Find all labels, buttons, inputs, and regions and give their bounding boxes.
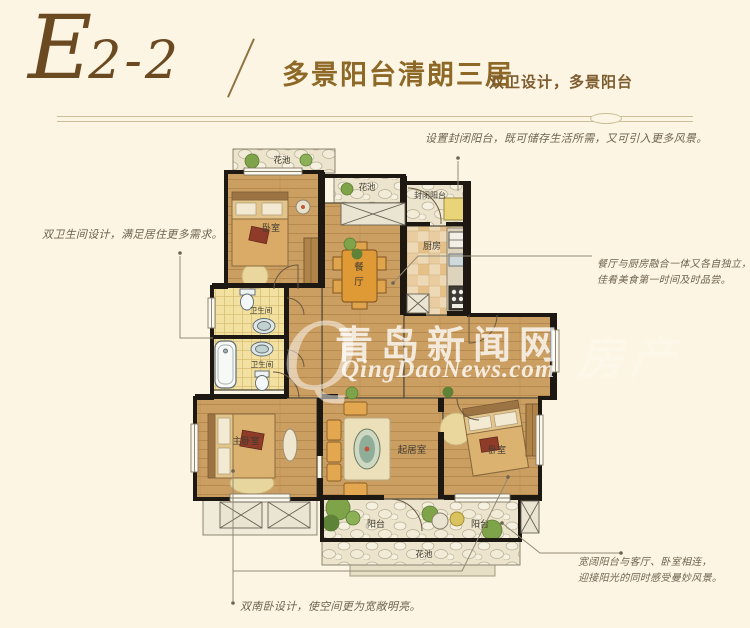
- window-hatch-left1: [220, 502, 262, 528]
- balcony-table-icon: [432, 513, 448, 529]
- label-flower-bed-mid: 花池: [358, 182, 376, 193]
- window-hatch-left2: [268, 502, 310, 528]
- annotation-balcony-line1: 宽阔阳台与客厅、卧室相连，: [578, 555, 722, 571]
- annotation-balcony: 宽阔阳台与客厅、卧室相连， 迎接阳光的同时感受曼妙风景。: [578, 555, 722, 587]
- label-balcony-left: 阳台: [367, 518, 385, 530]
- label-kitchen: 厨房: [423, 240, 441, 252]
- annotation-enclosed-balcony: 设置封闭阳台，既可储存生活所需，又可引入更多风景。: [425, 131, 708, 147]
- label-flower-bed-bottom: 花池: [415, 549, 433, 560]
- annotation-kitchen-dining-line1: 餐厅与厨房融合一体又各自独立，: [597, 257, 750, 273]
- label-dining-2: 厅: [354, 277, 364, 288]
- label-dining-1: 餐: [354, 261, 364, 273]
- annotation-kitchen-dining-line2: 佳肴美食第一时间及时品尝。: [597, 273, 750, 289]
- label-living-room: 起居室: [398, 444, 427, 456]
- balcony-cabinet-icon: [444, 198, 465, 220]
- annotation-south-bedrooms: 双南卧设计，使空间更为宽敞明亮。: [240, 599, 421, 615]
- room-hall: [404, 315, 555, 398]
- label-bedroom-top: 卧室: [262, 222, 280, 234]
- label-balcony-right: 阳台: [471, 518, 489, 530]
- label-bathroom-upper: 卫生间: [250, 305, 273, 315]
- label-bathroom-lower: 卫生间: [251, 359, 274, 369]
- label-bedroom-right: 卧室: [488, 444, 506, 456]
- window-hatch-mid: [341, 203, 405, 225]
- window-hatch-kitchen: [407, 294, 429, 313]
- window-hatch-right: [521, 501, 539, 533]
- label-enclosed-balcony: 封闭阳台: [414, 190, 446, 200]
- label-master-bedroom: 主卧室: [232, 435, 259, 447]
- annotation-bathrooms: 双卫生间设计，满足居住更多需求。: [42, 227, 223, 243]
- annotation-kitchen-dining: 餐厅与厨房融合一体又各自独立， 佳肴美食第一时间及时品尝。: [597, 257, 750, 289]
- label-flower-bed-top: 花池: [273, 155, 291, 166]
- annotation-balcony-line2: 迎接阳光的同时感受曼妙风景。: [578, 571, 722, 587]
- floor-plan: 花池 卧室 花池 封闭阳台 厨房 餐 厅 卫生间 卫生间 主卧室 起居室 卧室 …: [0, 0, 750, 628]
- balcony-table2-icon: [450, 512, 464, 526]
- page: E2-2 多景阳台清朗三居 双卫设计，多景阳台: [0, 0, 750, 628]
